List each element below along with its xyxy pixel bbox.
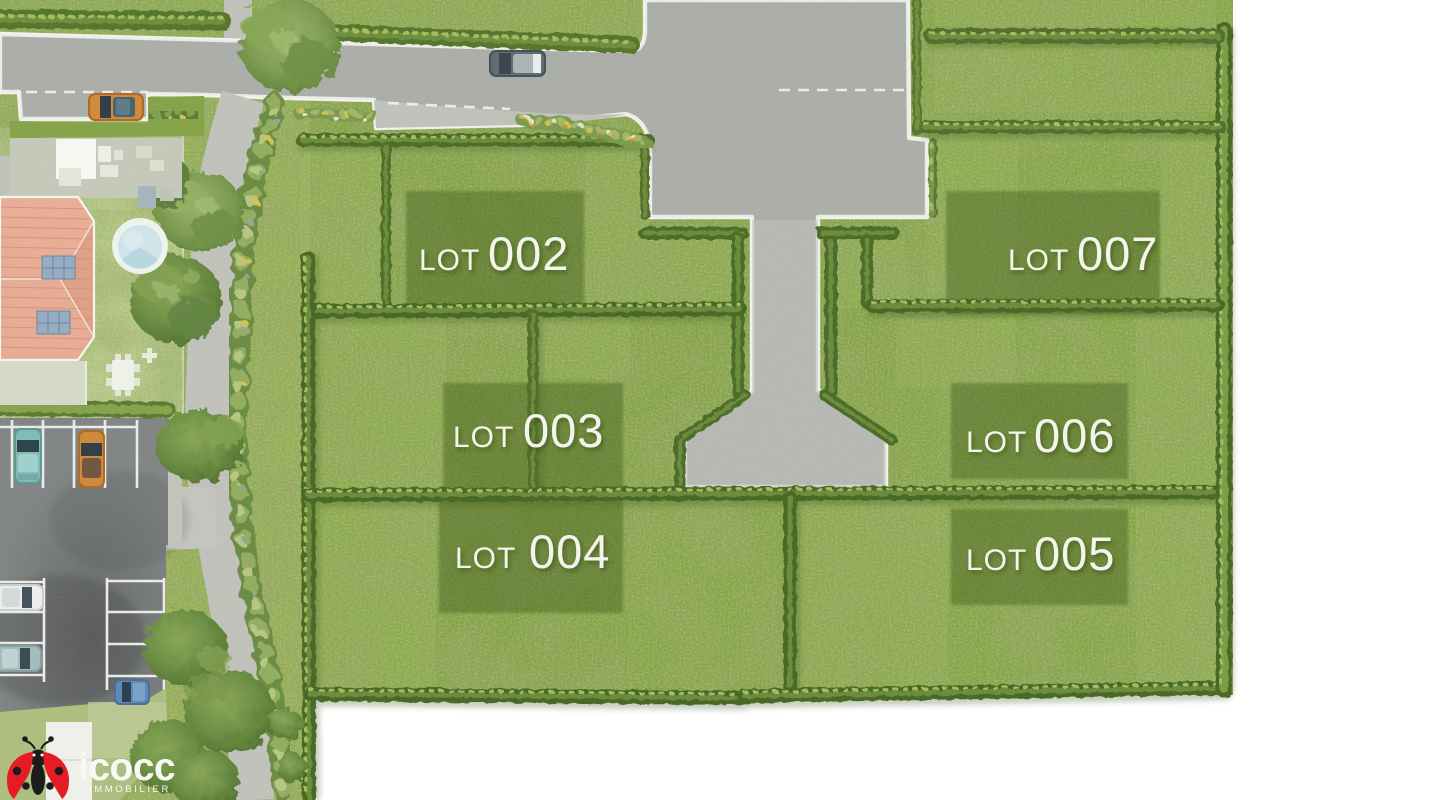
svg-text:007: 007 xyxy=(1077,227,1158,280)
svg-text:LOT: LOT xyxy=(419,244,480,277)
svg-text:005: 005 xyxy=(1034,527,1115,580)
svg-text:004: 004 xyxy=(529,525,610,578)
svg-text:LOT: LOT xyxy=(455,542,516,575)
svg-text:IMMOBILIER: IMMOBILIER xyxy=(89,784,171,795)
svg-text:003: 003 xyxy=(523,404,604,457)
svg-text:006: 006 xyxy=(1034,409,1115,462)
svg-text:LOT: LOT xyxy=(966,426,1027,459)
svg-text:icocc: icocc xyxy=(78,746,175,789)
svg-text:LOT: LOT xyxy=(1008,244,1069,277)
svg-text:LOT: LOT xyxy=(453,421,514,454)
svg-text:002: 002 xyxy=(488,227,569,280)
svg-text:LOT: LOT xyxy=(966,544,1027,577)
